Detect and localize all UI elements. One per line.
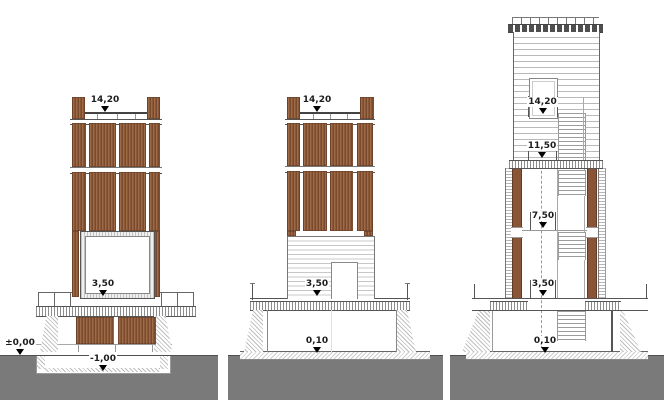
stair-flight (558, 113, 586, 160)
level-marker-base: 0,10 (531, 336, 559, 353)
floor-slab-band (509, 160, 603, 169)
dim-bar (555, 280, 556, 298)
level-triangle-icon (313, 290, 321, 296)
slab-wall-break (586, 227, 598, 238)
level-triangle-icon (539, 222, 547, 228)
level-label: 14,20 (90, 95, 120, 105)
stair-rail (583, 97, 584, 160)
level-triangle-icon (16, 349, 24, 355)
slab-wall-break (511, 227, 523, 238)
level-triangle-icon (99, 365, 107, 371)
level-marker-floor: 3,50 (531, 279, 555, 296)
slat-screen-section (598, 168, 606, 298)
level-triangle-icon (541, 347, 549, 353)
dim-bar (555, 212, 556, 230)
level-marker-parapet: 14,20 (303, 95, 331, 112)
level-label: 3,50 (531, 279, 555, 289)
level-triangle-icon (539, 108, 547, 114)
deck-top-line (472, 298, 648, 299)
level-marker-floor: 3,50 (303, 279, 331, 296)
deck-slab (490, 301, 528, 311)
level-label: 14,20 (527, 97, 557, 107)
level-triangle-icon (313, 347, 321, 353)
level-label: 11,50 (527, 141, 557, 151)
level-triangle-icon (313, 106, 321, 112)
level-label: -1,00 (89, 354, 117, 364)
railing-post (646, 284, 647, 298)
section-right: 14,20 11,50 7,50 3,50 0,10 (0, 0, 664, 410)
level-marker-floor: 3,50 (89, 279, 117, 296)
level-triangle-icon (538, 152, 546, 158)
level-triangle-icon (101, 106, 109, 112)
stair-flight (558, 232, 586, 260)
level-label: 0,10 (533, 336, 557, 346)
architectural-drawing-sheet: 14,20 3,50 ±0,00 -1,00 (0, 0, 664, 410)
floor-slab-line (522, 230, 587, 231)
level-marker-pit: -1,00 (89, 354, 117, 371)
level-marker-parapet: 14,20 (529, 97, 556, 114)
level-marker-base: 0,10 (303, 336, 331, 353)
basement-wall-line (611, 311, 613, 352)
level-label: 3,50 (305, 279, 329, 289)
basement-column (492, 311, 493, 352)
level-label: 7,50 (531, 211, 555, 221)
level-marker-roof: 11,50 (529, 141, 555, 158)
level-marker-parapet: 14,20 (91, 95, 119, 112)
level-label: 3,50 (91, 279, 115, 289)
railing-post (474, 284, 475, 298)
ground (450, 356, 664, 400)
level-marker-upper: 7,50 (531, 211, 555, 228)
deck-slab (585, 301, 621, 311)
stair-flight (558, 170, 586, 196)
stair-flight (557, 311, 586, 341)
support-footing (462, 311, 490, 352)
level-label: 14,20 (302, 95, 332, 105)
support-footing (620, 311, 641, 352)
level-label: 0,10 (305, 336, 329, 346)
level-label: ±0,00 (4, 338, 36, 348)
level-triangle-icon (99, 290, 107, 296)
level-triangle-icon (539, 290, 547, 296)
level-marker-ground: ±0,00 (4, 338, 36, 355)
